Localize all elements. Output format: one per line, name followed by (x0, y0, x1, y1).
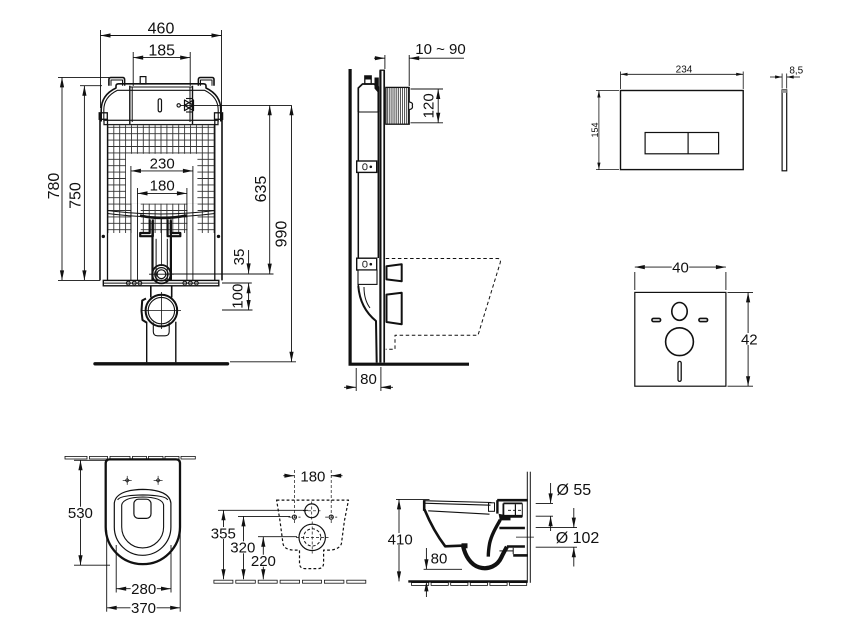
svg-text:120: 120 (421, 93, 438, 118)
svg-text:530: 530 (68, 505, 93, 522)
svg-text:180: 180 (150, 178, 175, 195)
svg-text:280: 280 (131, 581, 156, 598)
svg-text:Ø 102: Ø 102 (556, 530, 600, 547)
svg-text:234: 234 (676, 65, 693, 76)
svg-text:42: 42 (741, 331, 758, 348)
svg-text:10 ~ 90: 10 ~ 90 (415, 41, 465, 58)
svg-text:750: 750 (68, 182, 85, 209)
svg-text:460: 460 (148, 21, 175, 38)
svg-text:100: 100 (230, 284, 247, 309)
svg-text:780: 780 (46, 173, 63, 200)
svg-text:80: 80 (360, 371, 377, 388)
svg-text:990: 990 (274, 221, 291, 248)
svg-text:230: 230 (150, 155, 175, 172)
svg-text:180: 180 (300, 468, 325, 485)
svg-text:154: 154 (590, 122, 600, 137)
svg-text:8,5: 8,5 (789, 66, 803, 77)
svg-text:185: 185 (148, 43, 175, 60)
svg-text:635: 635 (253, 176, 270, 203)
svg-text:35: 35 (231, 249, 248, 266)
svg-text:80: 80 (431, 551, 448, 568)
svg-text:370: 370 (131, 600, 156, 617)
svg-text:410: 410 (388, 531, 413, 548)
svg-text:40: 40 (672, 259, 689, 276)
svg-text:220: 220 (251, 553, 276, 570)
svg-text:Ø 55: Ø 55 (557, 482, 592, 499)
